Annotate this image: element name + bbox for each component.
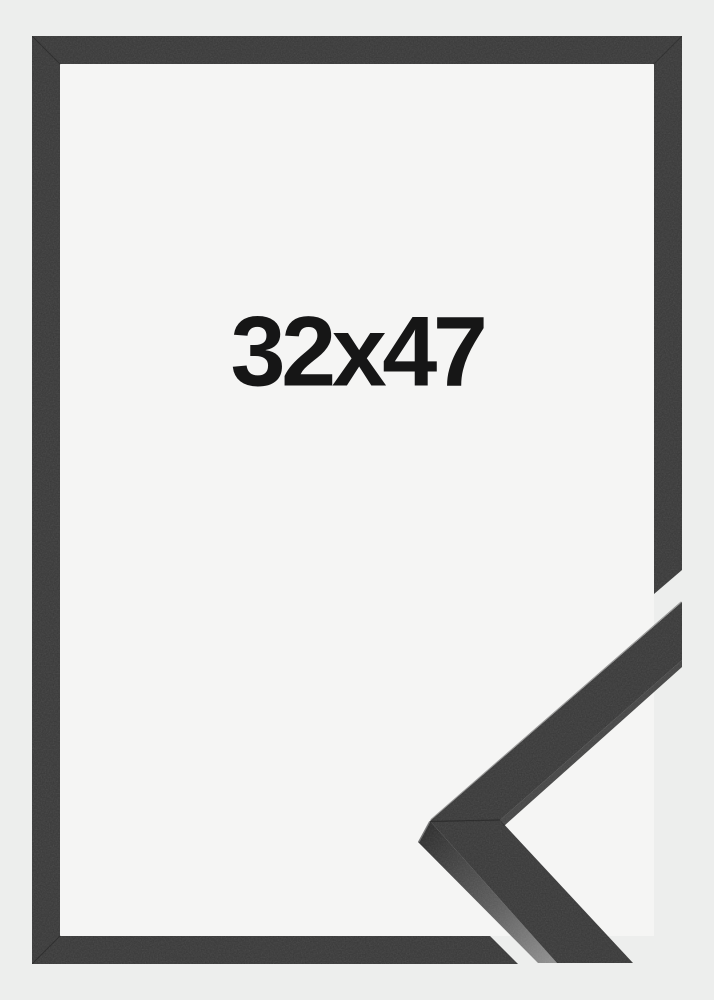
size-label: 32x47 [0, 302, 714, 401]
frame-product-photo: 32x47 [0, 0, 714, 1000]
frame-illustration [0, 0, 714, 1000]
frame-opening [60, 64, 654, 936]
